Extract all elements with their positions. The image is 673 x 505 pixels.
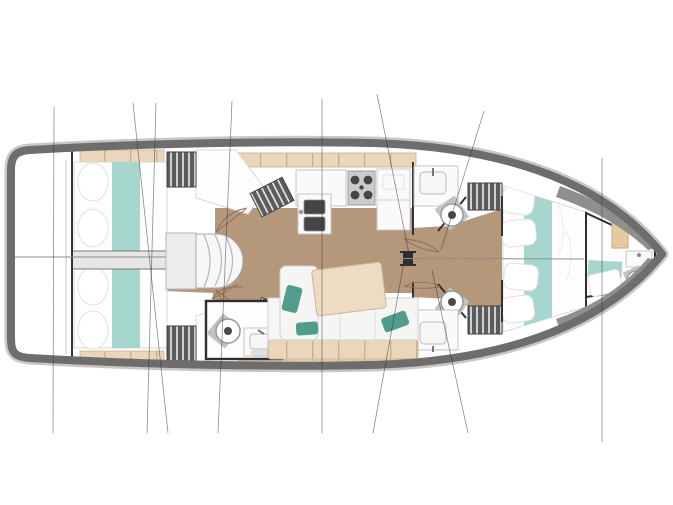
hanging-locker (167, 152, 196, 187)
burner-icon (359, 185, 363, 189)
hanging-locker (167, 326, 196, 361)
side-locker-band-top-aft (80, 150, 164, 163)
companionway-stairs (166, 233, 243, 289)
stairs-body (196, 234, 243, 288)
hanging-locker (468, 183, 502, 210)
settee-backrest (268, 340, 418, 359)
toilet-center (448, 298, 456, 306)
pillow (500, 294, 535, 324)
aft-berth-partition (73, 251, 167, 269)
saloon-table (311, 262, 386, 316)
side-locker-band-top-galley (222, 153, 416, 167)
burner-icon (351, 176, 360, 185)
pillow (501, 218, 538, 247)
partition-panel (73, 251, 167, 269)
hanging-locker (468, 306, 502, 334)
floor-plan-canvas (0, 0, 673, 505)
pillow (503, 262, 540, 291)
teal-runner (112, 162, 140, 251)
centerline (398, 259, 584, 260)
teal-runner (112, 262, 140, 348)
faucet-icon (299, 210, 303, 214)
pillow (78, 163, 108, 201)
pillow (78, 267, 108, 305)
throw-pillow (296, 321, 319, 336)
sailboat-floor-plan (0, 0, 673, 505)
burner-icon (364, 176, 373, 185)
toilet-center (224, 327, 232, 335)
burner-icon (351, 191, 360, 200)
faucet-icon (637, 253, 641, 257)
pillow (78, 209, 108, 247)
stairs-landing (166, 233, 196, 289)
burner-icon (364, 191, 373, 200)
washbasin (420, 322, 446, 344)
pillow (78, 311, 108, 349)
